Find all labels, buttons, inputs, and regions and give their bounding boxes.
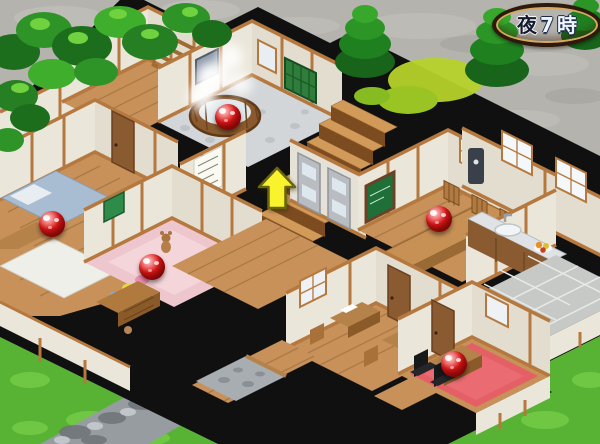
ball-desk-room[interactable] bbox=[441, 351, 467, 377]
ball-bathtub[interactable] bbox=[215, 104, 241, 130]
time-badge-char: 夜 bbox=[517, 15, 537, 35]
time-badge-char: 時 bbox=[557, 15, 577, 35]
time-badge-char: 7 bbox=[540, 15, 554, 35]
move-up-arrow-indicator[interactable] bbox=[257, 166, 297, 212]
game-scene: 夜 7 時 bbox=[0, 0, 600, 444]
time-badge: 夜 7 時 bbox=[492, 3, 600, 47]
ball-kids-room[interactable] bbox=[139, 254, 165, 280]
sliding-door[interactable] bbox=[298, 153, 320, 214]
bedroom-door[interactable] bbox=[112, 111, 134, 173]
sink bbox=[495, 224, 521, 236]
water-heater bbox=[468, 148, 484, 184]
ball-dining-table[interactable] bbox=[426, 206, 452, 232]
house-scene-graphics bbox=[0, 0, 600, 444]
ball-bedroom-futon[interactable] bbox=[39, 211, 65, 237]
up-arrow-icon bbox=[259, 168, 295, 208]
sliding-door[interactable] bbox=[328, 168, 350, 229]
